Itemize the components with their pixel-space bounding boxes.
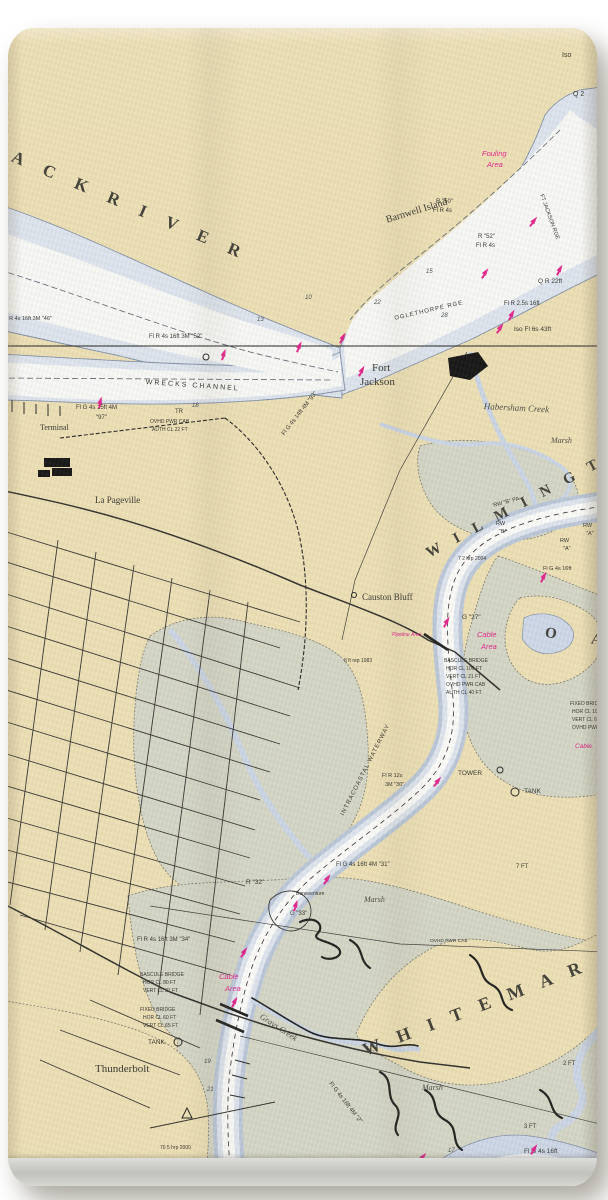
chart-graphics [8, 28, 597, 1186]
nautical-chart: A C K R I V E RW I L M I N G T O NO AW H… [8, 28, 597, 1186]
product-scene: A C K R I V E RW I L M I N G T O NO AW H… [0, 0, 608, 1200]
towel-hem [8, 1158, 597, 1186]
page: { "product": { "type_label": "nautical-c… [0, 0, 608, 1200]
beach-towel: A C K R I V E RW I L M I N G T O NO AW H… [8, 28, 597, 1186]
